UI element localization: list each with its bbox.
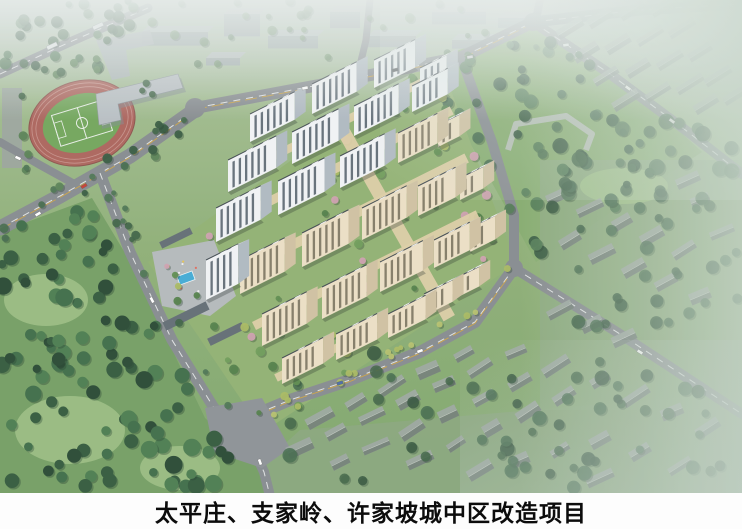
screenshot: 太平庄、支家岭、许家坡城中区改造项目 [0, 0, 742, 529]
project-title: 太平庄、支家岭、许家坡城中区改造项目 [155, 494, 587, 528]
caption-bar: 太平庄、支家岭、许家坡城中区改造项目 [0, 493, 742, 529]
aerial-rendering-image [0, 0, 742, 493]
fog-overlay [0, 0, 742, 493]
